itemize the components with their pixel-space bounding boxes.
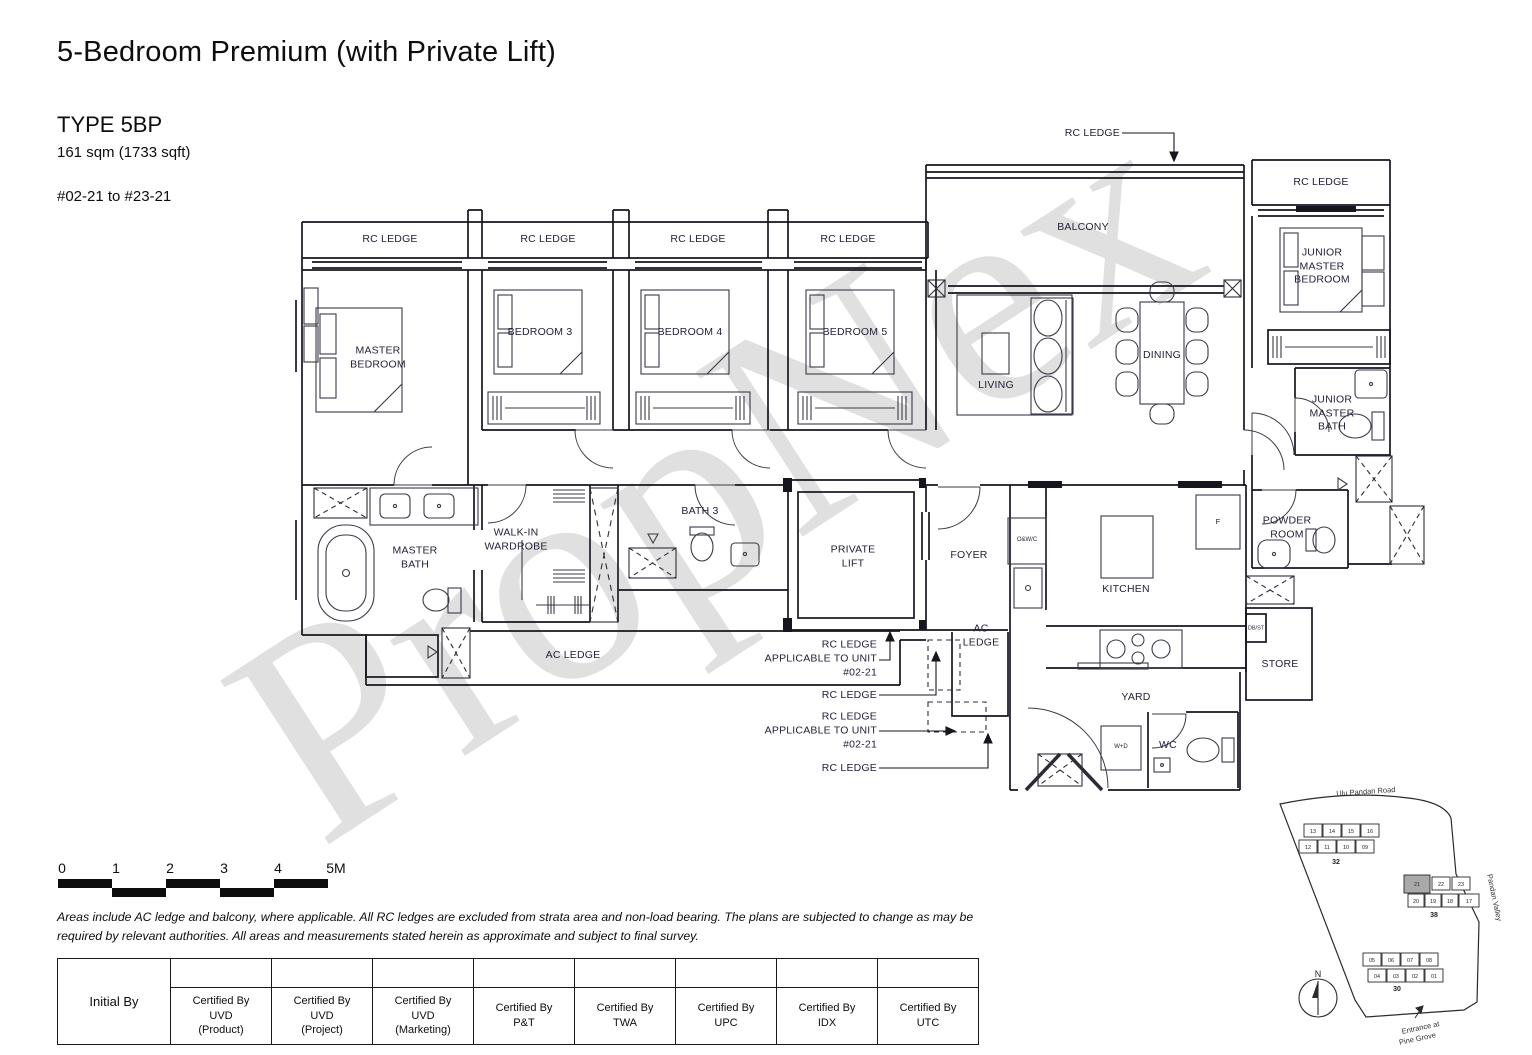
- room-label-wc: WC: [1159, 739, 1177, 753]
- table-cell-certified-uvd-marketing: Certified By UVD (Marketing): [373, 988, 474, 1045]
- svg-text:18: 18: [1447, 899, 1453, 905]
- svg-text:15: 15: [1348, 829, 1354, 835]
- room-label-store: STORE: [1262, 658, 1299, 672]
- room-label-junior-master-bath: JUNIOR MASTER BATH: [1310, 394, 1355, 435]
- north-compass: [1299, 979, 1337, 1017]
- room-label-balcony: BALCONY: [1057, 221, 1109, 235]
- site-map: Ulu Pandan Road Pandan Valley Entrance a…: [1258, 778, 1530, 1055]
- room-label-junior-master-bedroom: JUNIOR MASTER BEDROOM: [1294, 247, 1350, 288]
- scale-tick-1: 1: [112, 860, 120, 876]
- rc-ledge-label-2: RC LEDGE: [520, 233, 575, 247]
- rc-ledge-label-4: RC LEDGE: [820, 233, 875, 247]
- svg-text:09: 09: [1362, 845, 1368, 851]
- svg-text:07: 07: [1407, 958, 1413, 964]
- svg-text:22: 22: [1438, 882, 1444, 888]
- svg-text:17: 17: [1466, 899, 1472, 905]
- table-cell-blank: [878, 959, 979, 988]
- svg-text:01: 01: [1431, 974, 1437, 980]
- callout-rc-ledge-top: RC LEDGE: [1065, 126, 1120, 140]
- road-label-pandan-valley: Pandan Valley: [1485, 873, 1504, 922]
- svg-text:19: 19: [1430, 899, 1436, 905]
- rc-ledge-label-1: RC LEDGE: [362, 233, 417, 247]
- room-label-bath-3: BATH 3: [681, 505, 718, 519]
- svg-text:05: 05: [1369, 958, 1375, 964]
- table-cell-certified-upc: Certified By UPC: [676, 988, 777, 1045]
- cluster-30-label: 30: [1393, 986, 1401, 993]
- table-cell-certified-uvd-project: Certified By UVD (Project): [272, 988, 373, 1045]
- callout-rc-ledge-unit-3: RC LEDGE APPLICABLE TO UNIT #02-21: [765, 710, 877, 753]
- floorplan-sheet: { "header": { "title": "5-Bedroom Premiu…: [0, 0, 1532, 1055]
- door-marker-2: [1338, 478, 1347, 490]
- room-label-bedroom-3: BEDROOM 3: [508, 326, 573, 340]
- store-ac-box: [1246, 576, 1294, 604]
- svg-text:12: 12: [1305, 845, 1311, 851]
- ac-ledge-label-bottom: AC LEDGE: [546, 649, 601, 663]
- scale-bar: 0 1 2 3 4 5M: [58, 860, 338, 900]
- scale-tick-0: 0: [58, 860, 66, 876]
- svg-text:03: 03: [1393, 974, 1399, 980]
- scale-segment: [58, 879, 112, 888]
- svg-text:20: 20: [1413, 899, 1419, 905]
- table-cell-blank: [575, 959, 676, 988]
- room-label-yard: YARD: [1121, 691, 1150, 705]
- table-cell-blank: [474, 959, 575, 988]
- table-cell-blank: [676, 959, 777, 988]
- right-ac-box-2: [1390, 506, 1424, 564]
- room-label-powder-room: POWDER ROOM: [1263, 514, 1311, 541]
- right-ac-box-1: [1356, 456, 1392, 502]
- kitchen-fixtures: [1008, 495, 1240, 669]
- fixture-label-owc: O&W/C: [1017, 537, 1037, 545]
- svg-text:08: 08: [1426, 958, 1432, 964]
- table-cell-certified-twa: Certified By TWA: [575, 988, 676, 1045]
- svg-text:10: 10: [1343, 845, 1349, 851]
- room-label-dining: DINING: [1143, 349, 1181, 363]
- table-cell-certified-idx: Certified By IDX: [777, 988, 878, 1045]
- scale-segment: [220, 888, 274, 897]
- table-cell-blank: [171, 959, 272, 988]
- svg-text:13: 13: [1310, 829, 1316, 835]
- fixture-label-fridge: F: [1216, 517, 1221, 527]
- callout-rc-ledge-4: RC LEDGE: [822, 761, 877, 775]
- room-label-living: LIVING: [978, 379, 1014, 393]
- scale-tick-2: 2: [166, 860, 174, 876]
- cluster-38-label: 38: [1430, 912, 1438, 919]
- svg-text:06: 06: [1388, 958, 1394, 964]
- fixture-label-washer-dryer: W+D: [1114, 744, 1128, 752]
- room-label-bedroom-5: BEDROOM 5: [823, 326, 888, 340]
- svg-text:21: 21: [1414, 882, 1420, 888]
- svg-text:11: 11: [1324, 845, 1330, 851]
- ac-ledge-label-mid: AC LEDGE: [963, 622, 1000, 649]
- compass-n-label: N: [1315, 969, 1322, 979]
- room-label-foyer: FOYER: [950, 549, 987, 563]
- scale-tick-3: 3: [220, 860, 228, 876]
- table-cell-blank: [272, 959, 373, 988]
- rc-ledge-label-3: RC LEDGE: [670, 233, 725, 247]
- room-label-kitchen: KITCHEN: [1102, 583, 1150, 597]
- rc-ledge-label-junior: RC LEDGE: [1293, 176, 1348, 190]
- scale-tick-5: 5M: [326, 860, 345, 876]
- certification-table: Initial By Certified By UVD (Product) Ce…: [57, 958, 979, 1045]
- fixture-label-dbst: DB/ST: [1248, 625, 1264, 632]
- table-cell-initial-by: Initial By: [58, 959, 171, 1045]
- svg-text:23: 23: [1458, 882, 1464, 888]
- callout-rc-ledge-2: RC LEDGE: [822, 688, 877, 702]
- scale-segment: [274, 879, 328, 888]
- table-cell-blank: [777, 959, 878, 988]
- callout-rc-ledge-unit-1: RC LEDGE APPLICABLE TO UNIT #02-21: [765, 638, 877, 681]
- scale-segment: [112, 888, 166, 897]
- entrance-arrow: [1415, 1006, 1423, 1018]
- table-cell-certified-pt: Certified By P&T: [474, 988, 575, 1045]
- svg-text:02: 02: [1412, 974, 1418, 980]
- entry-door: [1026, 754, 1102, 790]
- room-label-master-bedroom: MASTER BEDROOM: [350, 344, 406, 371]
- room-label-private-lift: PRIVATE LIFT: [831, 543, 876, 570]
- room-label-master-bath: MASTER BATH: [393, 544, 438, 571]
- scale-tick-4: 4: [274, 860, 282, 876]
- cluster-32-label: 32: [1332, 859, 1340, 866]
- table-cell-certified-uvd-product: Certified By UVD (Product): [171, 988, 272, 1045]
- svg-text:04: 04: [1374, 974, 1380, 980]
- scale-segment: [166, 879, 220, 888]
- table-cell-certified-utc: Certified By UTC: [878, 988, 979, 1045]
- room-label-walk-in-wardrobe: WALK-IN WARDROBE: [484, 526, 547, 553]
- svg-text:14: 14: [1329, 829, 1335, 835]
- svg-text:16: 16: [1367, 829, 1373, 835]
- table-cell-blank: [373, 959, 474, 988]
- room-label-bedroom-4: BEDROOM 4: [658, 326, 723, 340]
- disclaimer-text: Areas include AC ledge and balcony, wher…: [57, 908, 1005, 946]
